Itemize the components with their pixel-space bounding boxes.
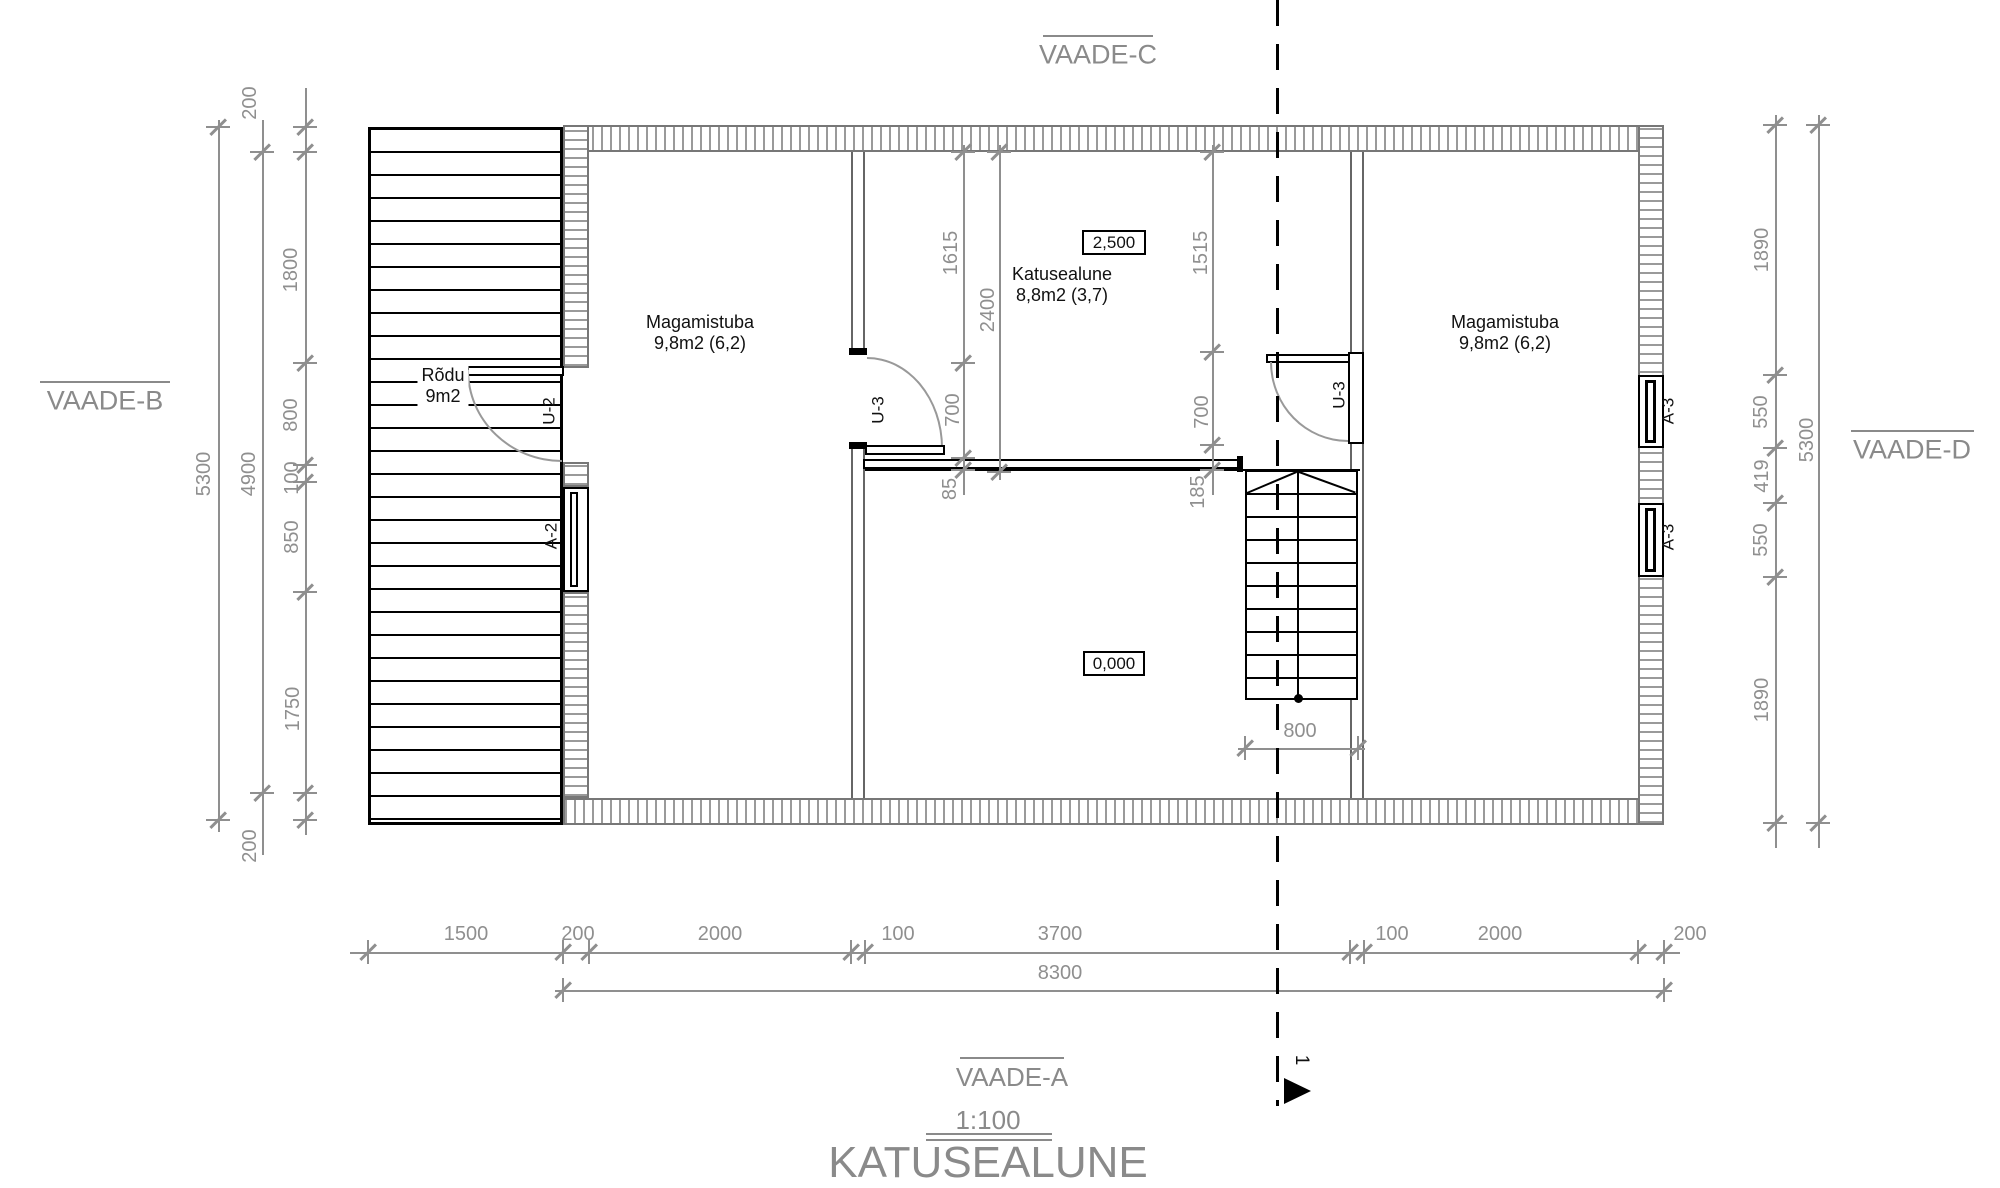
window-a2-glazing xyxy=(570,492,578,587)
dimension-label: 200 xyxy=(561,924,594,944)
dimension-label: 1615 xyxy=(941,231,961,276)
dimension-tick-stub xyxy=(206,819,230,821)
dimension-label: 700 xyxy=(1192,395,1212,428)
exterior-wall-left-stub xyxy=(563,462,589,487)
door-u3-left-leaf xyxy=(865,445,945,455)
window-a3-lower-glazing xyxy=(1645,508,1656,572)
scale-underline-1 xyxy=(926,1133,1052,1135)
dimension-tick-stub xyxy=(206,126,230,128)
balcony-deck xyxy=(368,127,563,825)
dimension-tick-stub xyxy=(1663,940,1665,964)
partition-left-upper xyxy=(851,152,865,352)
staircase-walkline-dot xyxy=(1294,694,1303,703)
dimension-label: 2000 xyxy=(698,924,743,944)
dimension-label: 100 xyxy=(881,924,914,944)
dimension-tick-stub xyxy=(1363,940,1365,964)
vaade-a-overline xyxy=(960,1057,1064,1059)
dimension-label: 100 xyxy=(1375,924,1408,944)
door-label-u3-right: U-3 xyxy=(1331,381,1348,408)
exterior-wall-left-upper xyxy=(563,125,589,368)
dimension-label: 200 xyxy=(240,86,260,119)
dimension-line xyxy=(1238,748,1365,750)
staircase xyxy=(1245,470,1358,700)
window-a3-upper-glazing xyxy=(1645,380,1656,443)
dimension-label: 200 xyxy=(240,829,260,862)
level-value: 2,500 xyxy=(1093,233,1136,253)
dimension-tick-stub xyxy=(562,978,564,1002)
drawing-title: KATUSEALUNE xyxy=(828,1141,1148,1185)
vaade-c-overline xyxy=(1043,35,1153,37)
dimension-tick-stub xyxy=(293,151,317,153)
dimension-label: 550 xyxy=(1751,523,1771,556)
dimension-label: 200 xyxy=(1673,924,1706,944)
dimension-tick-stub xyxy=(987,471,1011,473)
door-label-u2: U-2 xyxy=(541,397,558,424)
dimension-tick-stub xyxy=(864,940,866,964)
dimension-label: 2000 xyxy=(1478,924,1523,944)
exterior-wall-right xyxy=(1638,125,1664,825)
dimension-tick-stub xyxy=(951,469,975,471)
window-label-a3-lower: A-3 xyxy=(1660,524,1677,550)
dimension-tick-stub xyxy=(951,151,975,153)
staircase-center-line xyxy=(1297,470,1299,698)
vaade-b-overline xyxy=(40,381,170,383)
room-area: 9,8m2 (6,2) xyxy=(1451,333,1559,354)
door-label-u3-left: U-3 xyxy=(870,396,887,423)
room-name: Magamistuba xyxy=(1451,312,1559,333)
room-area: 9m2 xyxy=(421,386,464,407)
dimension-label: 5300 xyxy=(1797,418,1817,463)
dimension-line xyxy=(1775,115,1777,848)
dimension-label: 85 xyxy=(940,478,960,500)
partition-left-lower xyxy=(851,447,865,798)
dimension-line xyxy=(555,990,1672,992)
dimension-tick-stub xyxy=(1244,736,1246,760)
dimension-label: 700 xyxy=(943,393,963,426)
dimension-tick-stub xyxy=(1357,736,1359,760)
level-value: 0,000 xyxy=(1093,654,1136,674)
exterior-wall-left-lower xyxy=(563,592,589,798)
dimension-tick-stub xyxy=(1200,469,1224,471)
section-line xyxy=(1276,0,1279,1106)
window-label-a2: A-2 xyxy=(543,523,560,549)
dimension-label: 2400 xyxy=(978,288,998,333)
floor-plan-drawing: Magamistuba 9,8m2 (6,2) Katusealune 8,8m… xyxy=(0,0,2000,1188)
dimension-tick-stub xyxy=(1763,822,1787,824)
dimension-line xyxy=(999,145,1001,480)
door-u3-right-leaf xyxy=(1348,352,1364,444)
partition-right-upper xyxy=(1350,152,1364,352)
dimension-tick-stub xyxy=(293,819,317,821)
dimension-label: 100 xyxy=(282,461,302,494)
dimension-tick-stub xyxy=(293,591,317,593)
room-name: Katusealune xyxy=(1012,264,1112,285)
dimension-label: 800 xyxy=(1283,721,1316,741)
vaade-d-overline xyxy=(1851,430,1974,432)
drawing-scale: 1:100 xyxy=(955,1107,1020,1133)
dimension-line xyxy=(1818,115,1820,848)
dimension-tick-stub xyxy=(1637,940,1639,964)
exterior-wall-bottom xyxy=(563,798,1664,825)
dimension-tick-stub xyxy=(951,362,975,364)
dimension-tick-stub xyxy=(951,457,975,459)
view-label-left: VAADE-B xyxy=(47,388,164,415)
dimension-tick-stub xyxy=(1763,374,1787,376)
level-marker-0000: 0,000 xyxy=(1083,651,1145,676)
room-area: 8,8m2 (3,7) xyxy=(1012,285,1112,306)
room-name: Rõdu xyxy=(421,365,464,386)
dimension-label: 419 xyxy=(1752,459,1772,492)
dimension-label: 1750 xyxy=(283,687,303,732)
dimension-tick-stub xyxy=(1349,940,1351,964)
dimension-tick-stub xyxy=(293,792,317,794)
dimension-label: 3700 xyxy=(1038,924,1083,944)
dimension-label: 1800 xyxy=(281,248,301,293)
dimension-tick-stub xyxy=(1763,502,1787,504)
room-name: Magamistuba xyxy=(646,312,754,333)
dimension-tick-stub xyxy=(293,126,317,128)
view-label-right: VAADE-D xyxy=(1853,437,1971,464)
stair-railing xyxy=(863,459,1240,469)
dimension-line xyxy=(218,120,220,832)
dimension-label: 800 xyxy=(281,398,301,431)
dimension-tick-stub xyxy=(1806,124,1830,126)
dimension-label: 850 xyxy=(282,520,302,553)
dimension-tick-stub xyxy=(1200,351,1224,353)
dimension-tick-stub xyxy=(367,940,369,964)
dimension-tick-stub xyxy=(250,792,274,794)
dimension-tick-stub xyxy=(987,151,1011,153)
room-label-rodu: Rõdu 9m2 xyxy=(417,364,468,408)
dimension-label: 1515 xyxy=(1191,231,1211,276)
dimension-label: 4900 xyxy=(239,452,259,497)
dimension-tick-stub xyxy=(850,940,852,964)
exterior-wall-top xyxy=(563,125,1664,152)
dimension-tick-stub xyxy=(1200,444,1224,446)
dimension-line xyxy=(262,120,264,855)
dimension-tick-stub xyxy=(1663,978,1665,1002)
room-label-katusealune: Katusealune 8,8m2 (3,7) xyxy=(1012,264,1112,306)
door-u3-left-jamb-top xyxy=(849,348,867,355)
dimension-label: 185 xyxy=(1188,475,1208,508)
section-arrow xyxy=(1284,1078,1311,1104)
room-label-magamistuba-right: Magamistuba 9,8m2 (6,2) xyxy=(1451,312,1559,354)
dimension-label: 1890 xyxy=(1752,228,1772,273)
dimension-label: 5300 xyxy=(194,452,214,497)
window-label-a3-upper: A-3 xyxy=(1660,398,1677,424)
level-marker-2500: 2,500 xyxy=(1082,230,1146,255)
dimension-line xyxy=(350,952,1680,954)
dimension-tick-stub xyxy=(1763,576,1787,578)
dimension-label: 1500 xyxy=(444,924,489,944)
room-area: 9,8m2 (6,2) xyxy=(646,333,754,354)
dimension-tick-stub xyxy=(293,362,317,364)
dimension-tick-stub xyxy=(1763,124,1787,126)
dimension-label: 550 xyxy=(1751,395,1771,428)
dimension-label: 8300 xyxy=(1038,963,1083,983)
dimension-tick-stub xyxy=(1200,151,1224,153)
room-label-magamistuba-left: Magamistuba 9,8m2 (6,2) xyxy=(646,312,754,354)
view-label-bottom: VAADE-A xyxy=(956,1064,1068,1090)
dimension-tick-stub xyxy=(1763,447,1787,449)
dimension-label: 1890 xyxy=(1752,678,1772,723)
dimension-tick-stub xyxy=(1806,822,1830,824)
dimension-line xyxy=(963,145,965,495)
view-label-top: VAADE-C xyxy=(1039,42,1157,69)
dimension-tick-stub xyxy=(250,151,274,153)
section-number: 1 xyxy=(1290,1055,1312,1066)
